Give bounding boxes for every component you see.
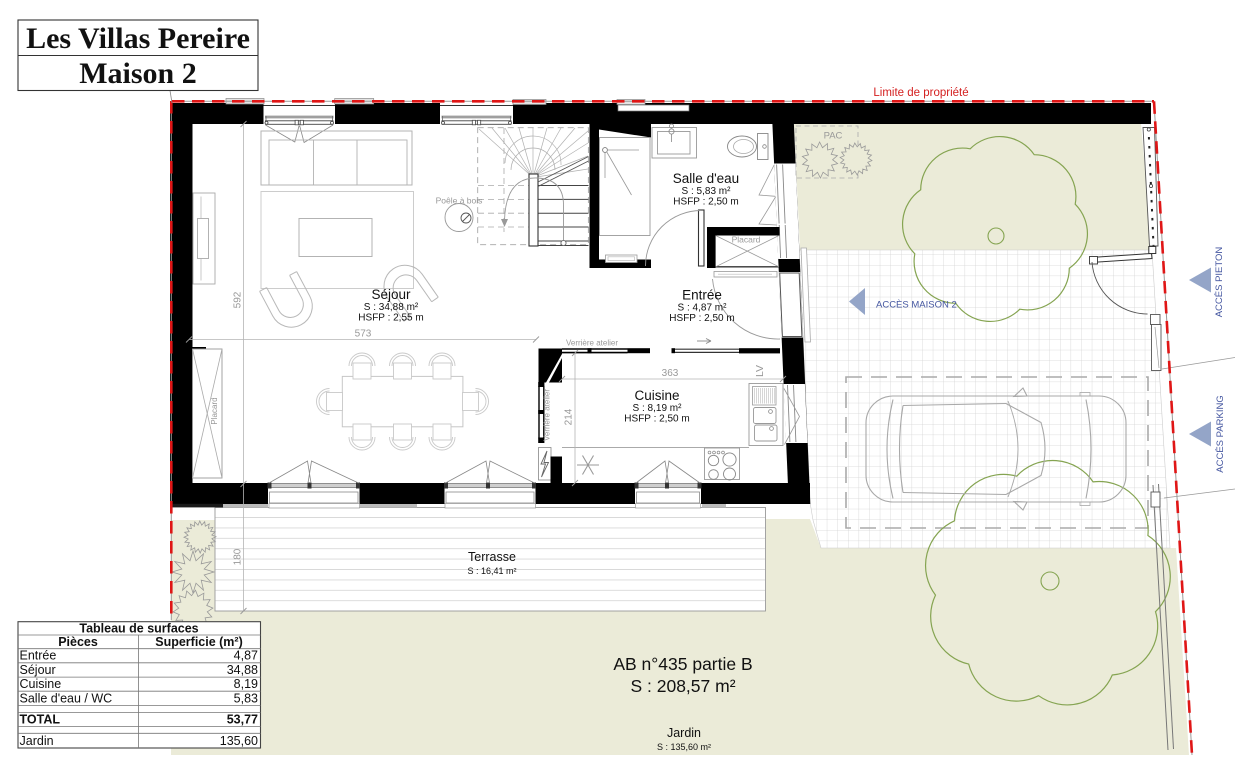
svg-text:Salle d'eau: Salle d'eau — [673, 171, 739, 186]
svg-text:S : 135,60 m²: S : 135,60 m² — [657, 742, 711, 752]
svg-text:Pièces: Pièces — [58, 635, 98, 649]
svg-text:Maison 2: Maison 2 — [79, 57, 197, 90]
svg-text:HSFP : 2,50 m: HSFP : 2,50 m — [669, 313, 734, 324]
svg-text:Salle d'eau / WC: Salle d'eau / WC — [20, 691, 113, 705]
svg-text:4,87: 4,87 — [234, 649, 258, 663]
svg-text:363: 363 — [662, 368, 679, 379]
svg-text:53,77: 53,77 — [227, 713, 258, 727]
svg-text:S : 208,57 m²: S : 208,57 m² — [630, 676, 735, 696]
svg-text:Superficie (m²): Superficie (m²) — [155, 635, 243, 649]
svg-text:Placard: Placard — [732, 235, 761, 245]
svg-text:Terrasse: Terrasse — [468, 550, 516, 564]
svg-text:573: 573 — [355, 329, 372, 340]
svg-text:ACCÈS MAISON 2: ACCÈS MAISON 2 — [876, 300, 957, 311]
svg-text:Limite de propriété: Limite de propriété — [873, 87, 968, 99]
svg-text:592: 592 — [233, 291, 244, 308]
svg-text:HSFP : 2,55 m: HSFP : 2,55 m — [358, 313, 423, 324]
svg-text:HSFP : 2,50 m: HSFP : 2,50 m — [673, 197, 738, 208]
svg-text:Entrée: Entrée — [682, 288, 722, 303]
svg-text:S : 4,87 m²: S : 4,87 m² — [678, 303, 728, 314]
svg-text:Verrière atelier: Verrière atelier — [566, 339, 618, 348]
svg-text:LV: LV — [754, 365, 766, 377]
svg-text:PAC: PAC — [824, 131, 843, 142]
svg-text:Poêle à bois: Poêle à bois — [436, 196, 483, 206]
svg-text:Tableau de surfaces: Tableau de surfaces — [79, 622, 198, 636]
svg-text:Cuisine: Cuisine — [634, 388, 679, 403]
svg-text:180: 180 — [233, 548, 244, 565]
svg-text:Jardin: Jardin — [20, 734, 54, 748]
svg-text:S : 8,19 m²: S : 8,19 m² — [633, 403, 683, 414]
svg-text:Les Villas Pereire: Les Villas Pereire — [26, 22, 250, 55]
svg-text:8,19: 8,19 — [234, 677, 258, 691]
svg-text:Verrière atelier: Verrière atelier — [543, 389, 552, 441]
svg-text:Placard: Placard — [210, 397, 219, 424]
svg-text:Cuisine: Cuisine — [20, 677, 62, 691]
svg-text:AB n°435 partie B: AB n°435 partie B — [613, 654, 752, 674]
svg-text:Séjour: Séjour — [371, 287, 411, 302]
svg-text:HSFP : 2,50 m: HSFP : 2,50 m — [624, 414, 689, 425]
svg-text:ACCÈS PARKING: ACCÈS PARKING — [1215, 395, 1226, 472]
svg-text:34,88: 34,88 — [227, 663, 258, 677]
svg-text:ACCÈS PIETON: ACCÈS PIETON — [1214, 247, 1225, 318]
svg-text:Jardin: Jardin — [667, 726, 701, 740]
svg-text:135,60: 135,60 — [220, 734, 258, 748]
svg-text:TOTAL: TOTAL — [20, 713, 61, 727]
svg-text:Séjour: Séjour — [20, 663, 56, 677]
svg-text:S : 5,83 m²: S : 5,83 m² — [682, 186, 732, 197]
svg-text:214: 214 — [564, 408, 575, 425]
svg-text:S : 34,88 m²: S : 34,88 m² — [364, 302, 419, 313]
svg-text:5,83: 5,83 — [234, 691, 258, 705]
svg-text:S : 16,41 m²: S : 16,41 m² — [467, 566, 516, 576]
svg-text:Entrée: Entrée — [20, 649, 57, 663]
